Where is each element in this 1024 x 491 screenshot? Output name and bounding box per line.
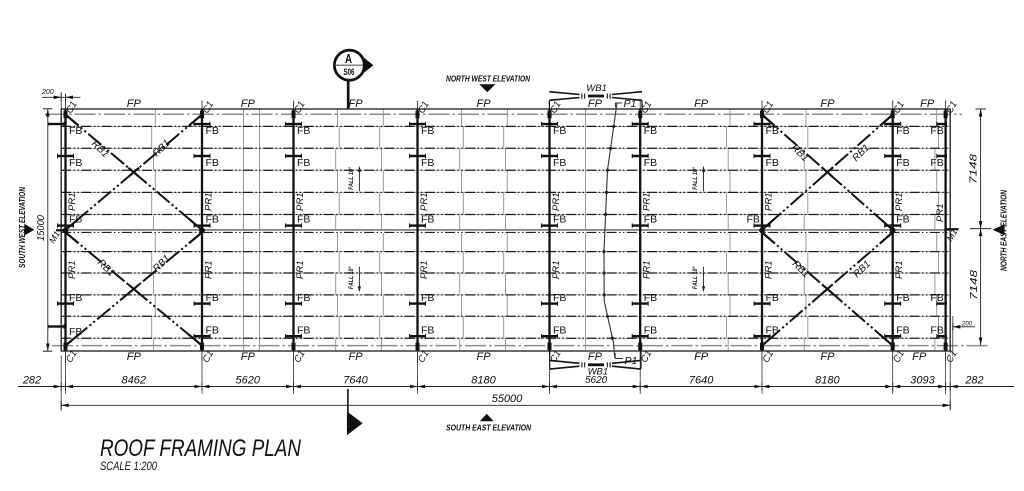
svg-text:FB: FB [206,292,219,304]
svg-text:P1: P1 [625,355,638,367]
svg-text:FB: FB [930,292,943,304]
svg-text:55000: 55000 [492,393,523,405]
svg-text:FB: FB [896,157,909,169]
svg-text:FB: FB [297,125,310,137]
svg-text:FALL 10°: FALL 10° [349,266,355,290]
svg-text:5620: 5620 [236,374,261,386]
svg-text:PR1: PR1 [295,261,306,279]
svg-text:FB: FB [69,213,82,225]
svg-text:FP: FP [241,351,256,363]
svg-text:PR1: PR1 [764,261,775,279]
svg-text:FB: FB [206,157,219,169]
svg-text:FB: FB [766,324,779,336]
svg-text:282: 282 [22,374,41,386]
svg-text:FB: FB [297,213,310,225]
svg-text:FB: FB [930,157,943,169]
svg-text:7148: 7148 [968,270,980,300]
svg-text:FP: FP [920,98,935,110]
svg-text:8462: 8462 [122,374,146,386]
svg-text:ROOF FRAMING PLAN: ROOF FRAMING PLAN [100,435,301,462]
svg-text:WB1: WB1 [586,83,607,94]
svg-text:PR1: PR1 [642,261,653,279]
svg-text:8180: 8180 [471,374,496,386]
svg-text:FB: FB [896,213,909,225]
svg-text:FB: FB [930,324,943,336]
svg-text:5620: 5620 [585,375,608,386]
svg-text:FP: FP [476,351,491,363]
svg-text:FP: FP [348,351,363,363]
svg-text:PR1: PR1 [894,193,905,211]
svg-text:200: 200 [41,89,54,96]
svg-text:FB: FB [896,125,909,137]
svg-text:SCALE 1:200: SCALE 1:200 [100,461,157,473]
svg-text:FB: FB [421,324,434,336]
svg-text:PR1: PR1 [642,193,653,211]
svg-text:15000: 15000 [35,215,47,241]
svg-text:PR1: PR1 [551,193,562,211]
svg-text:3093: 3093 [910,374,935,386]
svg-text:FB: FB [69,292,82,304]
svg-text:FB: FB [896,324,909,336]
svg-text:FB: FB [644,125,657,137]
svg-text:FB: FB [206,125,219,137]
svg-text:PR1: PR1 [295,193,306,211]
svg-text:FB: FB [421,292,434,304]
svg-text:282: 282 [964,374,983,386]
svg-text:FB: FB [896,292,909,304]
svg-text:FB: FB [766,125,779,137]
svg-text:S06: S06 [344,67,355,78]
svg-text:FB: FB [644,324,657,336]
svg-text:FB: FB [206,324,219,336]
svg-text:FP: FP [127,98,142,110]
svg-text:FB: FB [930,125,943,137]
svg-text:PR1: PR1 [551,261,562,279]
svg-text:FALL 10°: FALL 10° [349,166,355,190]
svg-text:NORTH WEST ELEVATION: NORTH WEST ELEVATION [446,75,530,84]
svg-text:FB: FB [644,292,657,304]
svg-text:FB: FB [553,324,566,336]
svg-text:FB: FB [206,213,219,225]
svg-text:PR1: PR1 [419,193,430,211]
svg-text:FB: FB [747,213,760,225]
svg-text:PR1: PR1 [894,261,905,279]
svg-text:FP: FP [820,351,835,363]
svg-text:P1: P1 [624,98,637,110]
svg-text:FB: FB [553,157,566,169]
svg-text:FP: FP [588,351,603,363]
svg-text:FB: FB [297,324,310,336]
svg-text:FB: FB [553,292,566,304]
svg-text:FB: FB [69,157,82,169]
svg-text:FB: FB [766,157,779,169]
svg-text:7148: 7148 [968,154,980,184]
svg-text:FP: FP [694,351,709,363]
svg-text:FB: FB [553,213,566,225]
svg-text:FP: FP [348,98,363,110]
svg-text:PR1: PR1 [935,204,946,222]
svg-text:FB: FB [644,213,657,225]
svg-text:A: A [345,51,352,66]
svg-text:FALL 10°: FALL 10° [693,266,699,290]
svg-text:FB: FB [297,157,310,169]
svg-text:PR1: PR1 [419,261,430,279]
svg-text:PR1: PR1 [204,193,215,211]
svg-text:FP: FP [241,98,256,110]
svg-text:7640: 7640 [689,374,714,386]
svg-text:200: 200 [961,320,973,327]
svg-text:FP: FP [588,98,603,110]
svg-text:FP: FP [476,98,491,110]
svg-text:FB: FB [69,125,82,137]
svg-text:FB: FB [297,292,310,304]
svg-text:PR1: PR1 [67,193,78,211]
svg-text:FB: FB [421,213,434,225]
svg-text:FP: FP [127,351,142,363]
svg-text:FB: FB [421,157,434,169]
svg-text:FB: FB [553,125,566,137]
svg-text:8180: 8180 [815,374,840,386]
svg-text:PR1: PR1 [67,261,78,279]
svg-text:FB: FB [766,292,779,304]
svg-text:PR1: PR1 [764,193,775,211]
svg-text:FP: FP [694,98,709,110]
svg-text:SOUTH EAST ELEVATION: SOUTH EAST ELEVATION [446,424,531,433]
svg-text:FP: FP [912,351,927,363]
svg-text:PR1: PR1 [204,261,215,279]
svg-text:FALL 10°: FALL 10° [693,166,699,190]
svg-text:FB: FB [421,125,434,137]
svg-text:FB: FB [644,157,657,169]
svg-text:7640: 7640 [343,374,368,386]
svg-text:FP: FP [820,98,835,110]
